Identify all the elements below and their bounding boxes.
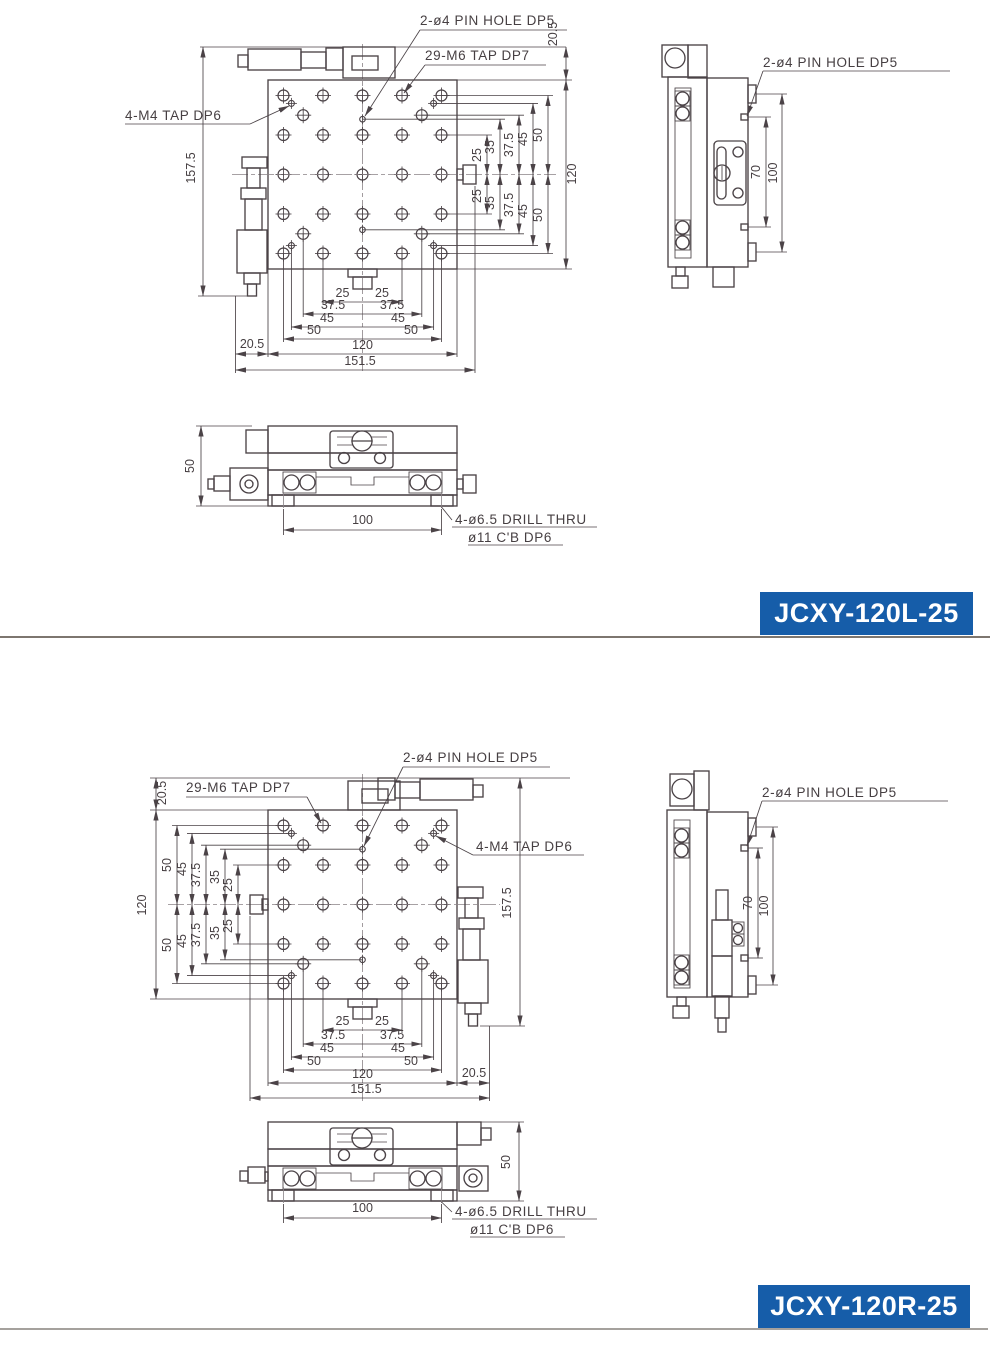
dim-20-5-bottom: 20.5 <box>462 1066 486 1080</box>
dim-120-bottom: 120 <box>352 338 373 352</box>
dim-45-br: 45 <box>391 1041 405 1055</box>
model-name-left: JCXY-120L-25 <box>774 598 959 629</box>
dim-100-front: 100 <box>352 1201 373 1215</box>
drawing-canvas: 157.5 20.5 120 25 35 37.5 45 50 25 <box>0 0 1000 1367</box>
right-model-drawing: 157.5 20.5 120 25 35 37.5 45 50 25 <box>135 750 948 1237</box>
callout-side-pin-hole: 2-ø4 PIN HOLE DP5 <box>763 55 898 70</box>
plan-dims-left: 157.5 20.5 120 25 35 37.5 45 50 25 <box>184 22 579 373</box>
callout-counterbore: ø11 C'B DP6 <box>470 1222 554 1237</box>
dim-25-bl: 25 <box>336 1014 350 1028</box>
callout-side-pin-hole: 2-ø4 PIN HOLE DP5 <box>762 785 897 800</box>
top-clamp-plate <box>330 1128 393 1165</box>
dim-25-ll: 25 <box>221 919 235 933</box>
front-view-right: 50 100 4-ø6.5 DRILL THRU ø11 C'B DP6 <box>240 1122 597 1237</box>
x-micrometer-top-right <box>348 778 483 810</box>
front-view-left: 50 100 4-ø6.5 DRILL THRU ø11 C'B DP6 <box>183 426 597 545</box>
dim-45-ru: 45 <box>516 132 530 146</box>
dim-37-5-br: 37.5 <box>380 1028 404 1042</box>
section-divider-bottom <box>0 1328 988 1330</box>
dim-120-left: 120 <box>135 895 149 916</box>
section-divider-top <box>0 636 990 638</box>
dim-37-5-bl: 37.5 <box>321 1028 345 1042</box>
dim-25-ru: 25 <box>470 148 484 162</box>
dim-37-5-bl: 37.5 <box>321 298 345 312</box>
dim-45-br: 45 <box>391 311 405 325</box>
dim-45-ll: 45 <box>175 934 189 948</box>
dim-100-side: 100 <box>757 896 771 917</box>
y-micrometer-left <box>237 157 267 296</box>
dim-151-5: 151.5 <box>350 1082 381 1096</box>
plan-callouts-left: 2-ø4 PIN HOLE DP5 29-M6 TAP DP7 4-M4 TAP… <box>125 13 567 124</box>
dim-50-lu: 50 <box>160 858 174 872</box>
dim-45-bl: 45 <box>320 311 334 325</box>
dim-50-ll: 50 <box>160 938 174 952</box>
dim-50-br: 50 <box>404 1054 418 1068</box>
dim-70-side: 70 <box>749 165 763 179</box>
callout-drill-thru: 4-ø6.5 DRILL THRU <box>455 512 587 527</box>
dim-35-rl: 35 <box>483 196 497 210</box>
dim-120-bottom: 120 <box>352 1067 373 1081</box>
dim-25-rl: 25 <box>470 189 484 203</box>
model-label-left: JCXY-120L-25 <box>760 592 973 635</box>
dim-151-5: 151.5 <box>344 354 375 368</box>
side-view-right: 70 100 2-ø4 PIN HOLE DP5 <box>667 771 948 1032</box>
dim-20-5-top: 20.5 <box>155 781 169 805</box>
left-model-drawing: 157.5 20.5 120 25 35 37.5 45 50 25 <box>125 13 950 545</box>
dim-100-front: 100 <box>352 513 373 527</box>
callout-m6-tap: 29-M6 TAP DP7 <box>425 48 530 63</box>
dim-37-5-ll: 37.5 <box>189 923 203 947</box>
callout-drill-thru: 4-ø6.5 DRILL THRU <box>455 1204 587 1219</box>
callout-pin-hole: 2-ø4 PIN HOLE DP5 <box>420 13 555 28</box>
dim-35-ru: 35 <box>483 140 497 154</box>
dim-70-side: 70 <box>741 896 755 910</box>
dim-25-br: 25 <box>375 1014 389 1028</box>
dim-25-lu: 25 <box>221 878 235 892</box>
dim-45-bl: 45 <box>320 1041 334 1055</box>
dim-50-rl: 50 <box>531 208 545 222</box>
y-micrometer-side <box>712 890 744 1032</box>
y-micrometer-right <box>458 887 488 1026</box>
dim-50-front: 50 <box>499 1155 513 1169</box>
callout-m4-tap: 4-M4 TAP DP6 <box>125 108 222 123</box>
dim-45-rl: 45 <box>516 204 530 218</box>
micrometer-mount-front <box>208 468 268 500</box>
dim-120-right: 120 <box>565 164 579 185</box>
dim-20-5-bottom: 20.5 <box>240 337 264 351</box>
catalog-sheet: 157.5 20.5 120 25 35 37.5 45 50 25 <box>0 0 1000 1367</box>
model-label-right: JCXY-120R-25 <box>758 1285 970 1328</box>
callout-pin-hole: 2-ø4 PIN HOLE DP5 <box>403 750 538 765</box>
dim-157-5: 157.5 <box>500 887 514 918</box>
dim-100-side: 100 <box>766 163 780 184</box>
dim-35-lu: 35 <box>208 870 222 884</box>
callout-m6-tap: 29-M6 TAP DP7 <box>186 780 291 795</box>
micrometer-mount-front <box>459 1166 488 1191</box>
dim-37-5-br: 37.5 <box>380 298 404 312</box>
model-name-right: JCXY-120R-25 <box>770 1291 958 1322</box>
plan-dims-right: 157.5 20.5 120 25 35 37.5 45 50 25 <box>135 778 570 1101</box>
dim-157-5: 157.5 <box>184 152 198 183</box>
dim-35-ll: 35 <box>208 926 222 940</box>
callout-counterbore: ø11 C'B DP6 <box>468 530 552 545</box>
dim-37-5-ru: 37.5 <box>502 133 516 157</box>
side-view-left: 70 100 2-ø4 PIN HOLE DP5 <box>662 45 950 288</box>
callout-m4-tap: 4-M4 TAP DP6 <box>476 839 573 854</box>
dim-50-front: 50 <box>183 459 197 473</box>
top-clamp-plate <box>330 431 393 468</box>
x-micrometer-top-left <box>238 47 395 78</box>
dim-50-ru: 50 <box>531 128 545 142</box>
dim-37-5-rl: 37.5 <box>502 193 516 217</box>
dim-50-bl: 50 <box>307 1054 321 1068</box>
dim-45-lu: 45 <box>175 862 189 876</box>
dim-50-bl: 50 <box>307 323 321 337</box>
dim-50-br: 50 <box>404 323 418 337</box>
dim-37-5-lu: 37.5 <box>189 863 203 887</box>
